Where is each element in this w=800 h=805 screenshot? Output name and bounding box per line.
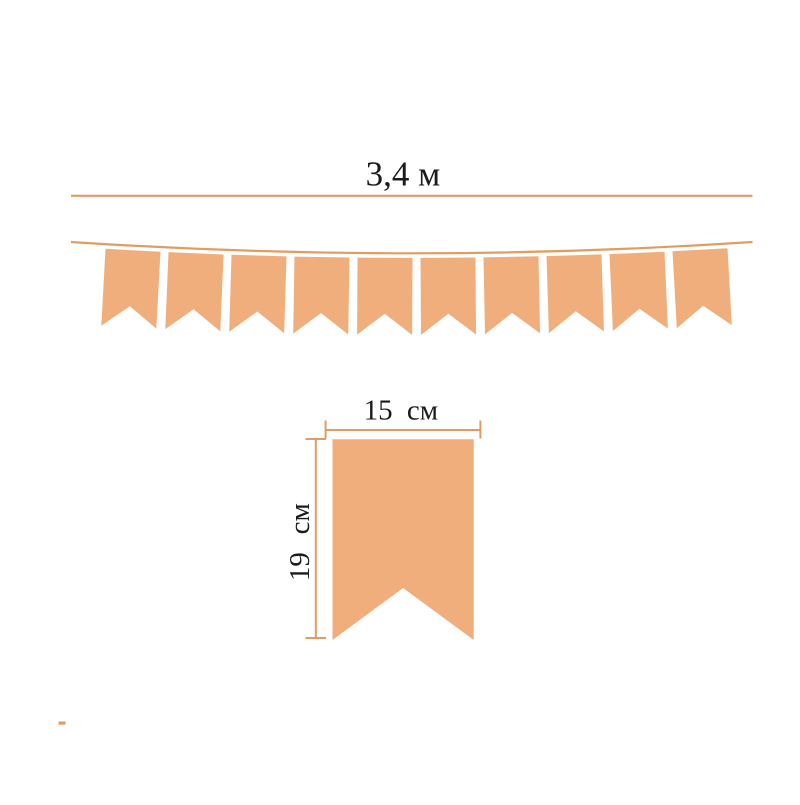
svg-text:19 см: 19 см: [284, 503, 316, 581]
svg-text:15 см: 15 см: [364, 395, 438, 427]
svg-text:3,4 м: 3,4 м: [366, 155, 441, 194]
